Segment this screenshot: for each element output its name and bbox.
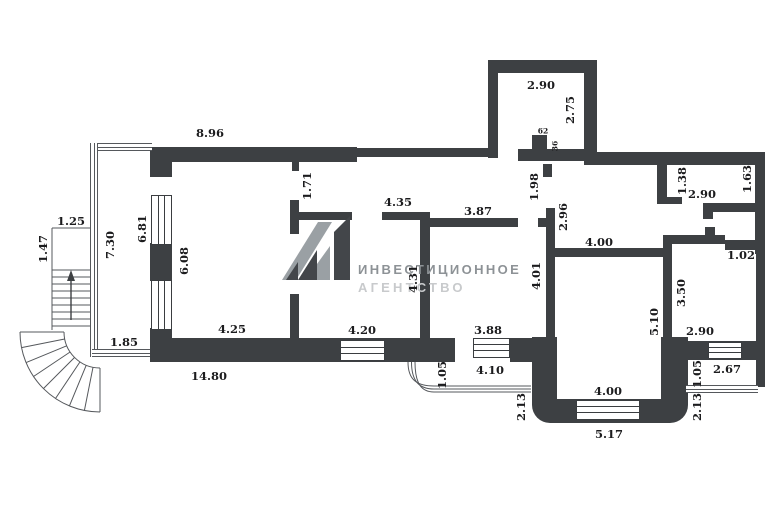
wall-segment <box>543 164 552 177</box>
dim-top-room-height: 2.75 <box>563 96 577 124</box>
dim-stub-36: 36 <box>551 141 560 151</box>
dim-shelf: 1.02 <box>727 248 755 262</box>
dim-center-balcony-depth: 1.05 <box>435 361 449 389</box>
wall-segment <box>532 135 547 149</box>
dim-room4-height: 5.10 <box>647 308 661 336</box>
dim-terrace-outer: 5.17 <box>595 427 623 441</box>
wall-segment <box>290 294 299 340</box>
dim-left-door: 1.85 <box>110 335 138 349</box>
dim-top-wall: 8.96 <box>196 126 224 140</box>
wall-segment <box>150 147 357 162</box>
wall-segment <box>663 235 672 342</box>
dim-room5-height: 3.50 <box>674 279 688 307</box>
staircase <box>0 220 120 420</box>
balcony-railing <box>90 143 152 151</box>
wall-segment <box>554 248 664 257</box>
wall-segment <box>538 218 546 227</box>
dim-top-room-width: 2.90 <box>527 78 555 92</box>
window <box>340 340 385 361</box>
floor-plan: ИНВЕСТИЦИОННОЕ АГЕНТСТВО 8.96 2.90 62 1.… <box>0 0 770 510</box>
window <box>708 342 742 359</box>
dim-corridor: 2.96 <box>556 203 570 231</box>
dim-room4-width: 4.00 <box>585 235 613 249</box>
wall-segment <box>357 148 498 157</box>
wall-segment <box>430 218 518 227</box>
dim-hall-width: 3.87 <box>464 204 492 218</box>
dim-terrace-right: 2.13 <box>690 393 704 421</box>
wall-segment <box>150 243 172 281</box>
wall-segment <box>663 235 725 244</box>
watermark-text-primary: ИНВЕСТИЦИОННОЕ <box>358 262 521 277</box>
window <box>151 195 172 245</box>
wall-segment <box>703 203 757 212</box>
wall-segment <box>584 60 597 162</box>
dim-left-wall-inner: 6.08 <box>177 247 191 275</box>
dim-landing-height: 1.47 <box>36 235 50 263</box>
wall-segment <box>150 328 172 362</box>
dim-bottom-wall: 14.80 <box>191 369 227 383</box>
wall-segment <box>292 162 299 171</box>
dim-terrace-left: 2.13 <box>514 393 528 421</box>
dim-br-window: 2.90 <box>686 324 714 338</box>
dim-landing-width: 1.25 <box>57 214 85 228</box>
dim-right-balcony-depth: 1.05 <box>690 360 704 388</box>
dim-room3-window: 3.88 <box>474 323 502 337</box>
wall-segment <box>488 60 498 158</box>
dim-left-wall-outer: 6.81 <box>135 215 149 243</box>
dim-terrace-width: 4.00 <box>594 384 622 398</box>
dim-closet-right: 1.63 <box>740 165 754 193</box>
dim-hall-door: 1.98 <box>527 173 541 201</box>
dim-left-balcony: 7.30 <box>103 231 117 259</box>
wall-segment <box>756 248 765 387</box>
dim-room1-door: 1.71 <box>300 172 314 200</box>
watermark-logo <box>282 214 354 286</box>
wall-segment <box>657 197 682 204</box>
dim-closet-left: 1.38 <box>675 167 689 195</box>
dim-room2-top: 4.35 <box>384 195 412 209</box>
wall-segment <box>584 152 757 165</box>
dim-room2-width: 4.20 <box>348 323 376 337</box>
dim-room2-height: 4.31 <box>406 265 420 293</box>
dim-room3-height: 4.01 <box>529 262 543 290</box>
dim-room3-width: 4.10 <box>476 363 504 377</box>
window <box>151 280 172 330</box>
wall-segment <box>703 212 713 219</box>
dim-closet-width: 2.90 <box>688 187 716 201</box>
window <box>576 400 640 420</box>
dim-right-balcony: 2.67 <box>713 362 741 376</box>
wall-segment <box>488 60 596 73</box>
dim-stub-62: 62 <box>538 127 548 136</box>
dim-room1-width: 4.25 <box>218 322 246 336</box>
